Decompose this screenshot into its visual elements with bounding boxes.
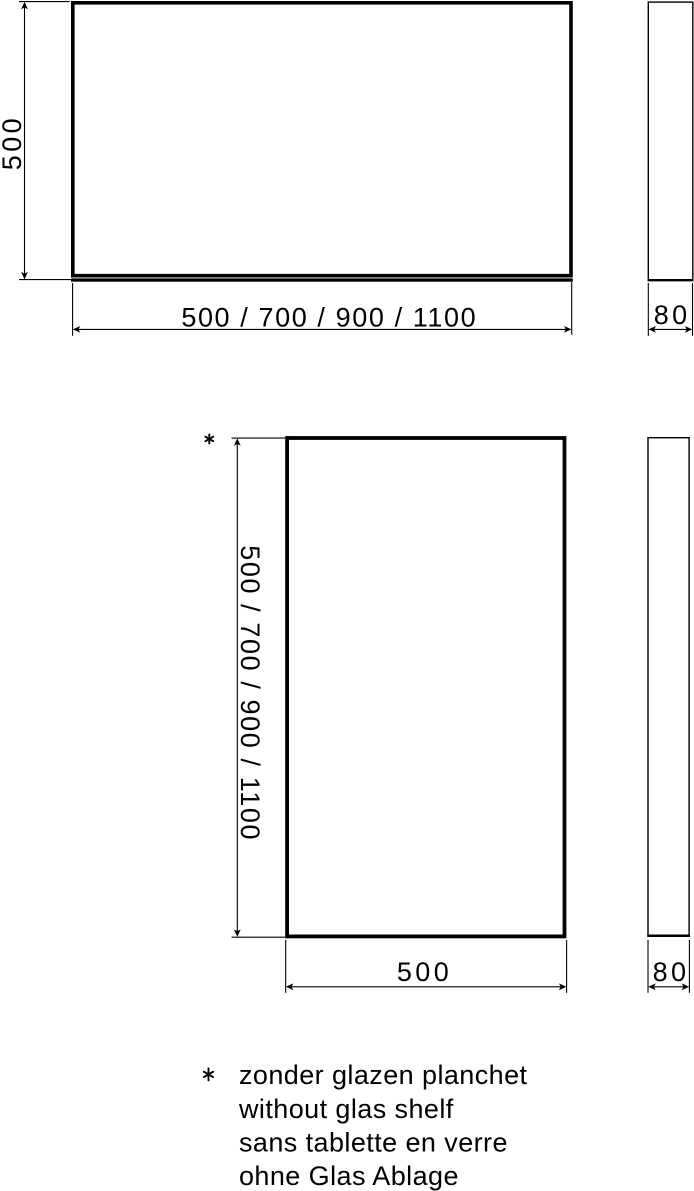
- svg-text:without glas shelf: without glas shelf: [238, 1094, 454, 1124]
- svg-text:500: 500: [397, 957, 452, 987]
- svg-text:80: 80: [654, 300, 691, 330]
- svg-text:500: 500: [0, 115, 27, 170]
- svg-text:ohne Glas Ablage: ohne Glas Ablage: [239, 1161, 459, 1191]
- svg-text:80: 80: [653, 957, 690, 987]
- svg-text:500 / 700 / 900 / 1100: 500 / 700 / 900 / 1100: [235, 545, 265, 841]
- svg-text:500 / 700 / 900 / 1100: 500 / 700 / 900 / 1100: [181, 302, 477, 332]
- svg-text:zonder glazen planchet: zonder glazen planchet: [239, 1060, 528, 1090]
- svg-text:sans tablette en verre: sans tablette en verre: [239, 1127, 508, 1157]
